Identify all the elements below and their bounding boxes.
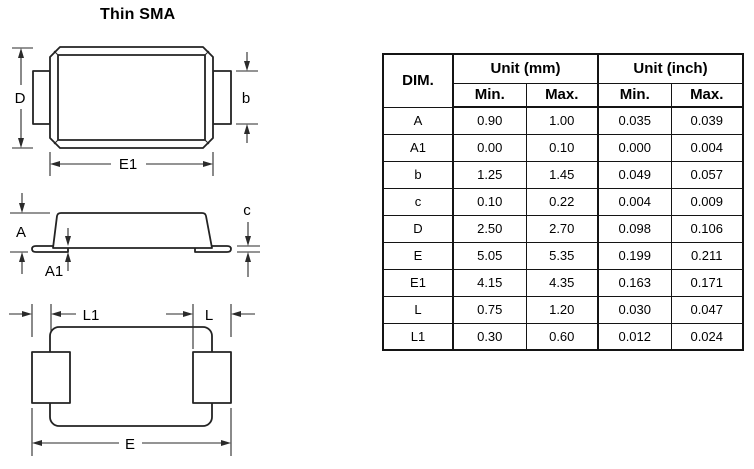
cell-mm-max: 1.00 [526, 107, 598, 134]
arrowhead [183, 311, 193, 317]
cell-inch-min: 0.049 [598, 161, 671, 188]
cell-dim: A [383, 107, 453, 134]
header-unit-mm: Unit (mm) [453, 54, 598, 83]
arrowhead [244, 61, 250, 71]
cell-inch-min: 0.163 [598, 269, 671, 296]
arrowhead [65, 252, 71, 262]
arrowhead [19, 203, 25, 213]
dim-label-b: b [242, 90, 250, 107]
cell-inch-min: 0.199 [598, 242, 671, 269]
package-body-side [53, 213, 212, 248]
cell-inch-max: 0.106 [671, 215, 743, 242]
cell-inch-min: 0.000 [598, 134, 671, 161]
cell-mm-max: 4.35 [526, 269, 598, 296]
cell-dim: b [383, 161, 453, 188]
table-row: c 0.10 0.22 0.004 0.009 [383, 188, 743, 215]
left-pad [32, 352, 70, 403]
bottom-view-drawing: L1 L E [9, 304, 255, 456]
top-view-drawing: D b E1 [12, 47, 258, 176]
right-terminal-tab [213, 71, 231, 124]
arrowhead [19, 252, 25, 262]
cell-mm-min: 0.00 [453, 134, 526, 161]
table-row: E 5.05 5.35 0.199 0.211 [383, 242, 743, 269]
package-body-top-face [58, 55, 205, 140]
header-inch-max: Max. [671, 83, 743, 107]
package-body-bottom [50, 327, 212, 426]
cell-inch-max: 0.009 [671, 188, 743, 215]
arrowhead [51, 311, 61, 317]
cell-inch-max: 0.171 [671, 269, 743, 296]
cell-mm-max: 1.45 [526, 161, 598, 188]
cell-mm-max: 0.60 [526, 323, 598, 350]
cell-inch-max: 0.057 [671, 161, 743, 188]
cell-inch-max: 0.004 [671, 134, 743, 161]
arrowhead [245, 252, 251, 262]
cell-mm-max: 1.20 [526, 296, 598, 323]
cell-mm-max: 2.70 [526, 215, 598, 242]
dim-label-e1: E1 [119, 156, 137, 173]
arrowhead [50, 161, 60, 167]
cell-inch-max: 0.039 [671, 107, 743, 134]
cell-mm-max: 0.10 [526, 134, 598, 161]
cell-mm-max: 0.22 [526, 188, 598, 215]
header-mm-min: Min. [453, 83, 526, 107]
header-inch-min: Min. [598, 83, 671, 107]
arrowhead [18, 48, 24, 58]
package-outline-drawings: D b E1 A A1 c [0, 0, 280, 469]
cell-dim: E [383, 242, 453, 269]
dim-label-l: L [205, 307, 213, 324]
side-view-drawing: A A1 c [10, 193, 260, 280]
cell-dim: L [383, 296, 453, 323]
arrowhead [245, 236, 251, 246]
dim-label-a: A [16, 224, 26, 241]
table-row: L1 0.30 0.60 0.012 0.024 [383, 323, 743, 350]
cell-dim: L1 [383, 323, 453, 350]
cell-inch-max: 0.047 [671, 296, 743, 323]
cell-inch-min: 0.035 [598, 107, 671, 134]
cell-inch-min: 0.030 [598, 296, 671, 323]
cell-mm-min: 0.90 [453, 107, 526, 134]
right-pad [193, 352, 231, 403]
cell-dim: D [383, 215, 453, 242]
dim-label-e: E [125, 436, 135, 453]
arrowhead [221, 440, 231, 446]
arrowhead [32, 440, 42, 446]
arrowhead [244, 124, 250, 134]
cell-inch-min: 0.004 [598, 188, 671, 215]
cell-dim: A1 [383, 134, 453, 161]
dim-line-c [237, 222, 260, 277]
table-row: L 0.75 1.20 0.030 0.047 [383, 296, 743, 323]
arrowhead [22, 311, 32, 317]
header-mm-max: Max. [526, 83, 598, 107]
cell-mm-min: 2.50 [453, 215, 526, 242]
dim-label-l1: L1 [83, 307, 100, 324]
cell-inch-max: 0.024 [671, 323, 743, 350]
cell-mm-min: 0.75 [453, 296, 526, 323]
cell-inch-max: 0.211 [671, 242, 743, 269]
cell-mm-min: 0.10 [453, 188, 526, 215]
dim-label-d: D [15, 90, 26, 107]
header-unit-inch: Unit (inch) [598, 54, 743, 83]
header-dim: DIM. [383, 54, 453, 107]
cell-mm-min: 0.30 [453, 323, 526, 350]
table-row: A1 0.00 0.10 0.000 0.004 [383, 134, 743, 161]
cell-mm-min: 4.15 [453, 269, 526, 296]
cell-inch-min: 0.098 [598, 215, 671, 242]
cell-mm-max: 5.35 [526, 242, 598, 269]
cell-mm-min: 5.05 [453, 242, 526, 269]
table-row: E1 4.15 4.35 0.163 0.171 [383, 269, 743, 296]
cell-inch-min: 0.012 [598, 323, 671, 350]
dimensions-table: DIM. Unit (mm) Unit (inch) Min. Max. Min… [382, 53, 744, 351]
dim-label-c: c [243, 202, 251, 219]
cell-mm-min: 1.25 [453, 161, 526, 188]
table-row: b 1.25 1.45 0.049 0.057 [383, 161, 743, 188]
left-terminal-tab [33, 71, 50, 124]
table-row: A 0.90 1.00 0.035 0.039 [383, 107, 743, 134]
table-row: D 2.50 2.70 0.098 0.106 [383, 215, 743, 242]
arrowhead [203, 161, 213, 167]
cell-dim: E1 [383, 269, 453, 296]
dim-label-a1: A1 [45, 263, 63, 280]
arrowhead [231, 311, 241, 317]
arrowhead [18, 138, 24, 148]
cell-dim: c [383, 188, 453, 215]
